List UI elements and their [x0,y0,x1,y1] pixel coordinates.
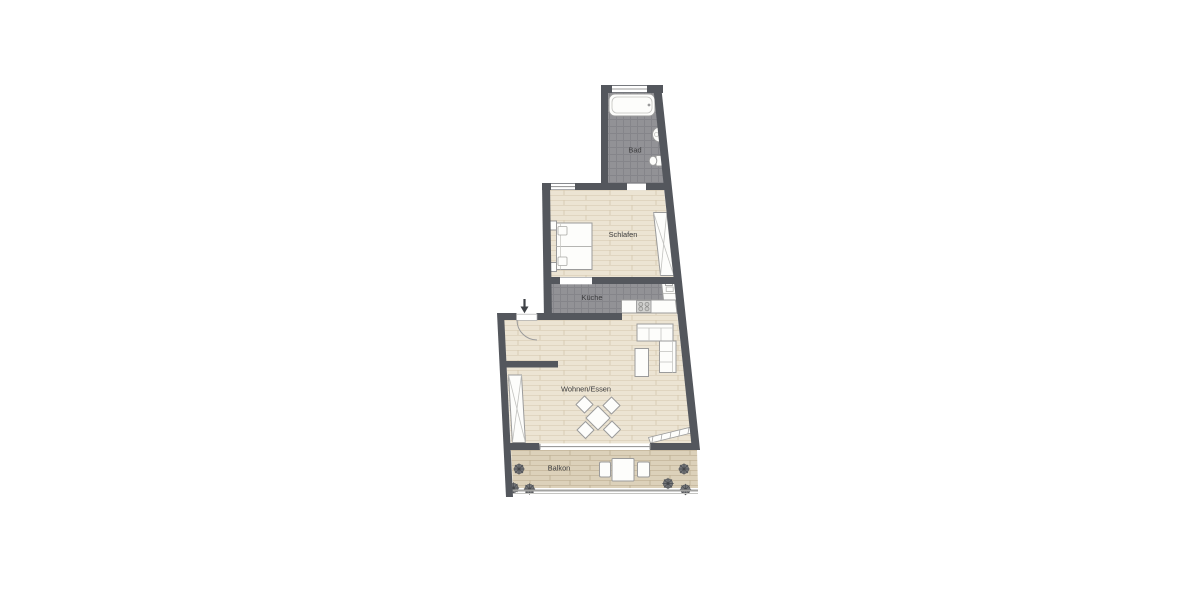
plant-icon [524,483,535,494]
balcony-chair-icon [600,462,611,477]
railing-icon [508,491,698,494]
entrance-arrow-icon [521,299,529,313]
wall-segment [601,85,608,190]
interior-wall-stub [505,361,558,368]
wall-segment [504,443,540,450]
balcony-chair-icon [638,462,650,477]
window-icon [551,184,575,190]
room-label-schlafen: Schlafen [609,230,638,239]
room-label-balkon: Balkon [548,464,571,473]
floor-plan-page: Bad Schlafen Küche Wohnen/Essen Balkon [0,0,1200,600]
balcony-window-icon [540,443,650,449]
stove-icon [637,301,652,313]
room-label-kueche: Küche [582,293,603,302]
balcony-table-icon [612,459,634,482]
window-icon [612,86,647,92]
coffee-table-icon [635,349,649,377]
room-label-bad: Bad [628,146,641,155]
door-opening [627,184,646,191]
bathtub-icon [609,94,655,116]
wall-segment [544,313,622,320]
double-bed-icon [557,223,593,270]
wall-segment [650,443,700,450]
plant-icon [662,478,673,489]
plant-icon [678,463,689,474]
floor-plan: Bad Schlafen Küche Wohnen/Essen Balkon [0,0,1200,600]
door-opening [560,277,592,284]
plant-icon [513,463,524,474]
room-label-wohnen-essen: Wohnen/Essen [561,385,611,394]
